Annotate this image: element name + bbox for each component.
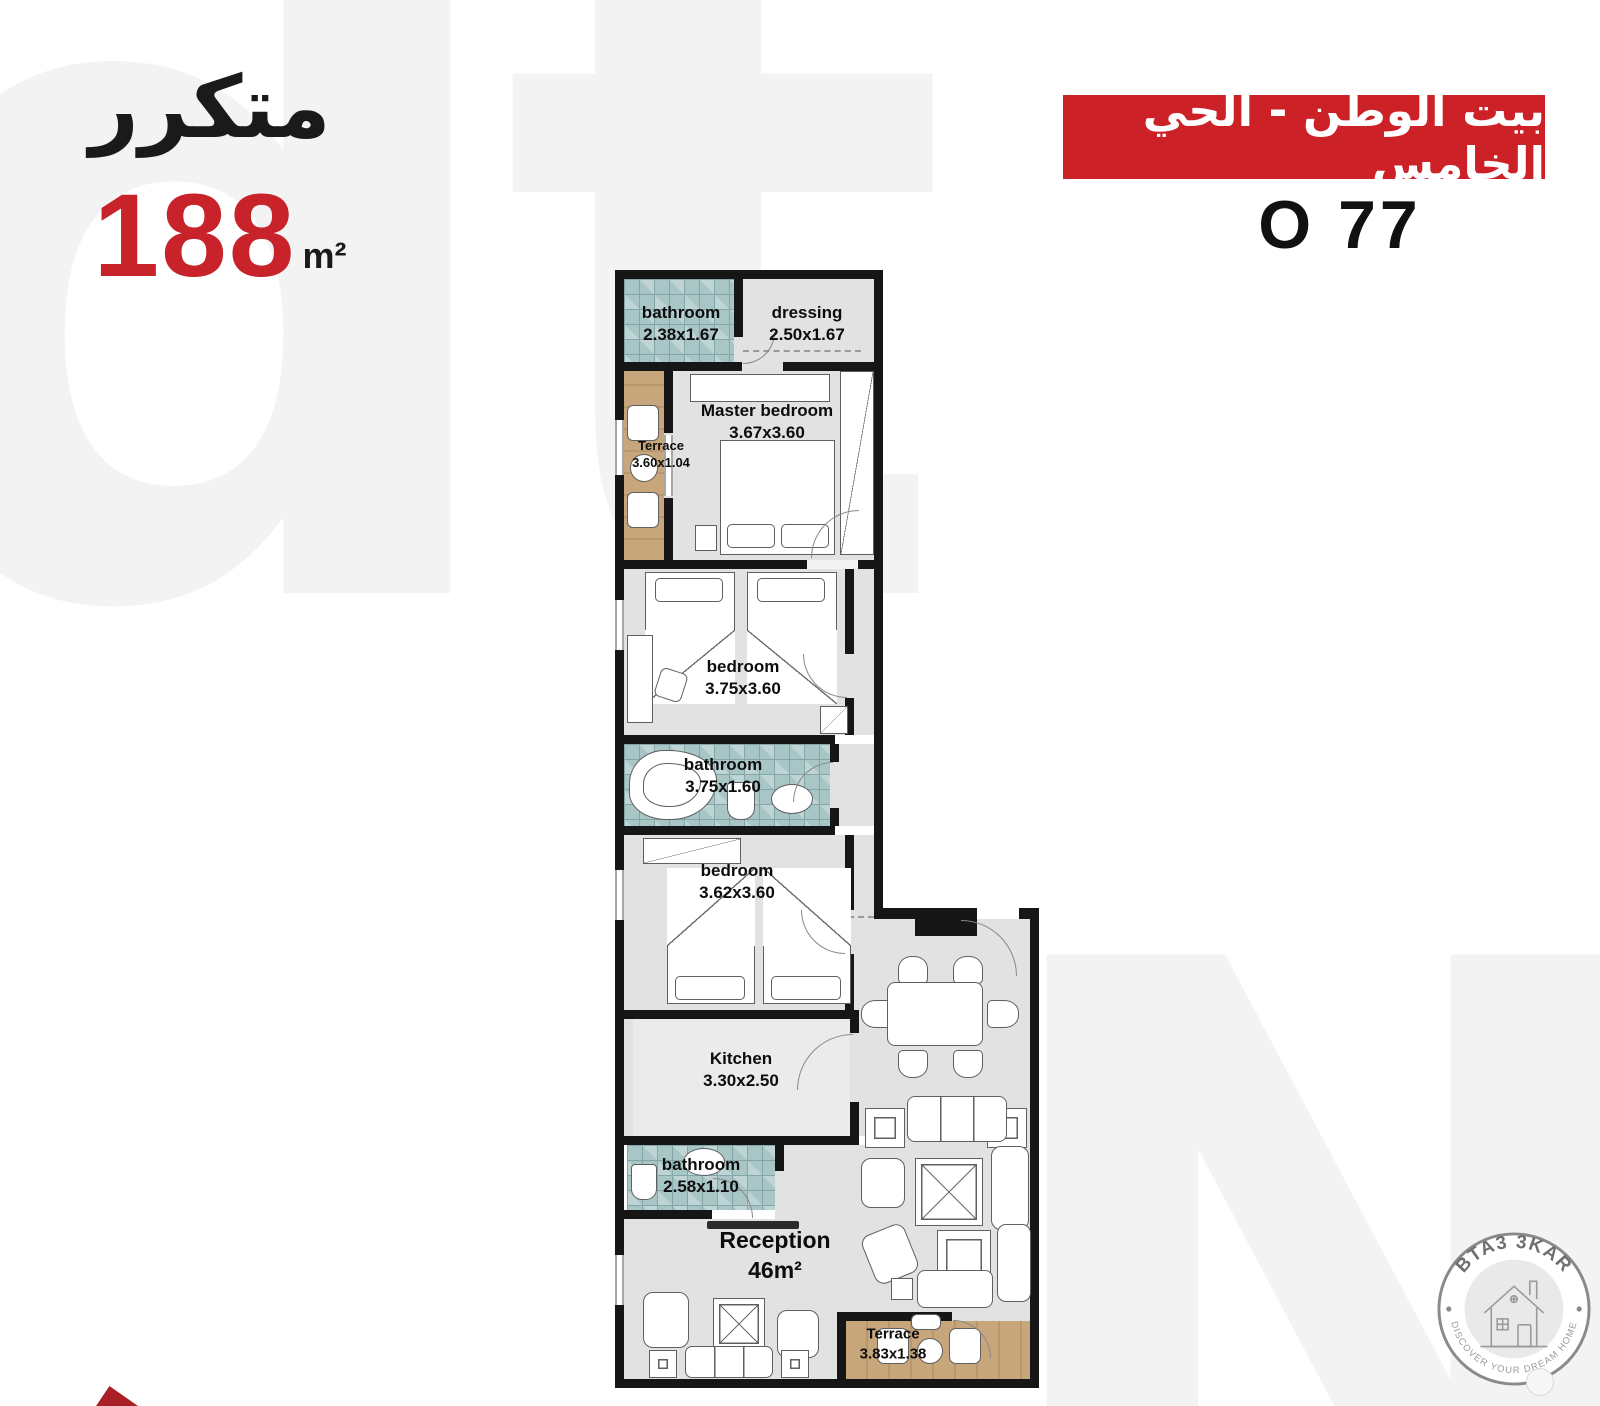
dining-chair	[953, 1050, 983, 1078]
wall	[775, 1145, 784, 1171]
side-table	[649, 1350, 677, 1378]
dresser	[690, 374, 830, 402]
logo-dot-left	[1446, 1306, 1451, 1311]
sofa-3seat	[907, 1096, 1007, 1142]
toilet	[631, 1164, 657, 1200]
side-table	[891, 1278, 913, 1300]
wall	[615, 362, 742, 371]
wall	[664, 371, 673, 433]
wall	[830, 808, 839, 826]
side-table	[865, 1108, 905, 1148]
logo-inner-circle	[1465, 1260, 1564, 1359]
wall	[664, 498, 673, 560]
room-label-bedroom1: bedroom 3.75x3.60	[705, 656, 781, 700]
armchair	[861, 1158, 905, 1208]
wall	[624, 1210, 712, 1219]
dining-chair	[898, 956, 928, 984]
terrace-chair	[627, 405, 659, 441]
room-label-bedroom2: bedroom 3.62x3.60	[699, 860, 775, 904]
wall	[850, 1019, 859, 1033]
room-label-terrace-bottom: Terrace 3.83x1.38	[860, 1325, 927, 1364]
room-label-terrace-top: Terrace 3.60x1.04	[632, 438, 690, 472]
closet	[820, 706, 848, 734]
floor-type-label: متكرر	[60, 58, 360, 158]
loveseat	[991, 1146, 1029, 1230]
pillow	[727, 524, 775, 548]
armchair	[643, 1292, 689, 1348]
flyer-canvas: dt N متكرر 188m² بيت الوطن - الحي الخامس…	[0, 0, 1600, 1406]
coffee-table	[915, 1158, 983, 1226]
desk	[627, 635, 653, 723]
window	[615, 600, 624, 650]
room-label-reception: Reception 46m²	[719, 1226, 830, 1286]
wall	[837, 1312, 846, 1379]
terrace-chair	[627, 492, 659, 528]
wall	[858, 560, 883, 569]
room-label-dressing: dressing 2.50x1.67	[769, 302, 845, 346]
wall	[615, 270, 883, 279]
pillow	[771, 976, 841, 1000]
area-value: 188	[94, 170, 297, 302]
room-label-bathroom-small: bathroom 2.58x1.10	[662, 1154, 740, 1198]
loveseat	[997, 1224, 1031, 1302]
window	[615, 420, 624, 475]
window	[615, 870, 624, 920]
wall	[1019, 908, 1039, 919]
room-label-bathroom-top: bathroom 2.38x1.67	[642, 302, 720, 346]
wall	[830, 744, 839, 762]
wall	[783, 362, 883, 371]
stamp-mark	[1526, 1368, 1554, 1396]
coffee-table	[713, 1298, 765, 1350]
nightstand	[695, 525, 717, 551]
pillow	[675, 976, 745, 1000]
hall-floor-3	[775, 1145, 874, 1219]
window	[615, 1255, 624, 1305]
floor-plan: bathroom 2.38x1.67 dressing 2.50x1.67 Te…	[615, 270, 1039, 1388]
logo-dot-right	[1577, 1306, 1582, 1311]
dining-chair	[898, 1050, 928, 1078]
sofa	[917, 1270, 993, 1308]
wall	[624, 1136, 859, 1145]
pillow	[655, 578, 723, 602]
project-banner: بيت الوطن - الحي الخامس	[1063, 95, 1545, 179]
wall	[1030, 910, 1039, 1388]
dining-chair	[987, 1000, 1019, 1028]
wall	[615, 560, 807, 569]
wall	[845, 569, 854, 654]
room-label-bathroom-mid: bathroom 3.75x1.60	[684, 754, 762, 798]
room-label-kitchen: Kitchen 3.30x2.50	[703, 1048, 779, 1092]
pillow	[757, 578, 825, 602]
wall	[615, 1010, 859, 1019]
wall	[615, 735, 835, 744]
room-label-master: Master bedroom 3.67x3.60	[701, 400, 833, 444]
wall	[734, 279, 743, 337]
unit-number: O 77	[1140, 186, 1540, 264]
corner-triangle-decoration	[96, 1386, 138, 1406]
project-banner-text: بيت الوطن - الحي الخامس	[1063, 84, 1545, 190]
area-row: 188m²	[60, 168, 380, 304]
wall	[615, 826, 835, 835]
area-unit: m²	[302, 235, 346, 276]
wall	[615, 1379, 1039, 1388]
dining-table	[887, 982, 983, 1046]
side-table	[781, 1350, 809, 1378]
wall	[850, 1102, 859, 1136]
sofa-3seat	[685, 1346, 773, 1378]
brand-logo: BTA3 3KAR DISCOVER YOUR DREAM HOME	[1435, 1230, 1593, 1388]
